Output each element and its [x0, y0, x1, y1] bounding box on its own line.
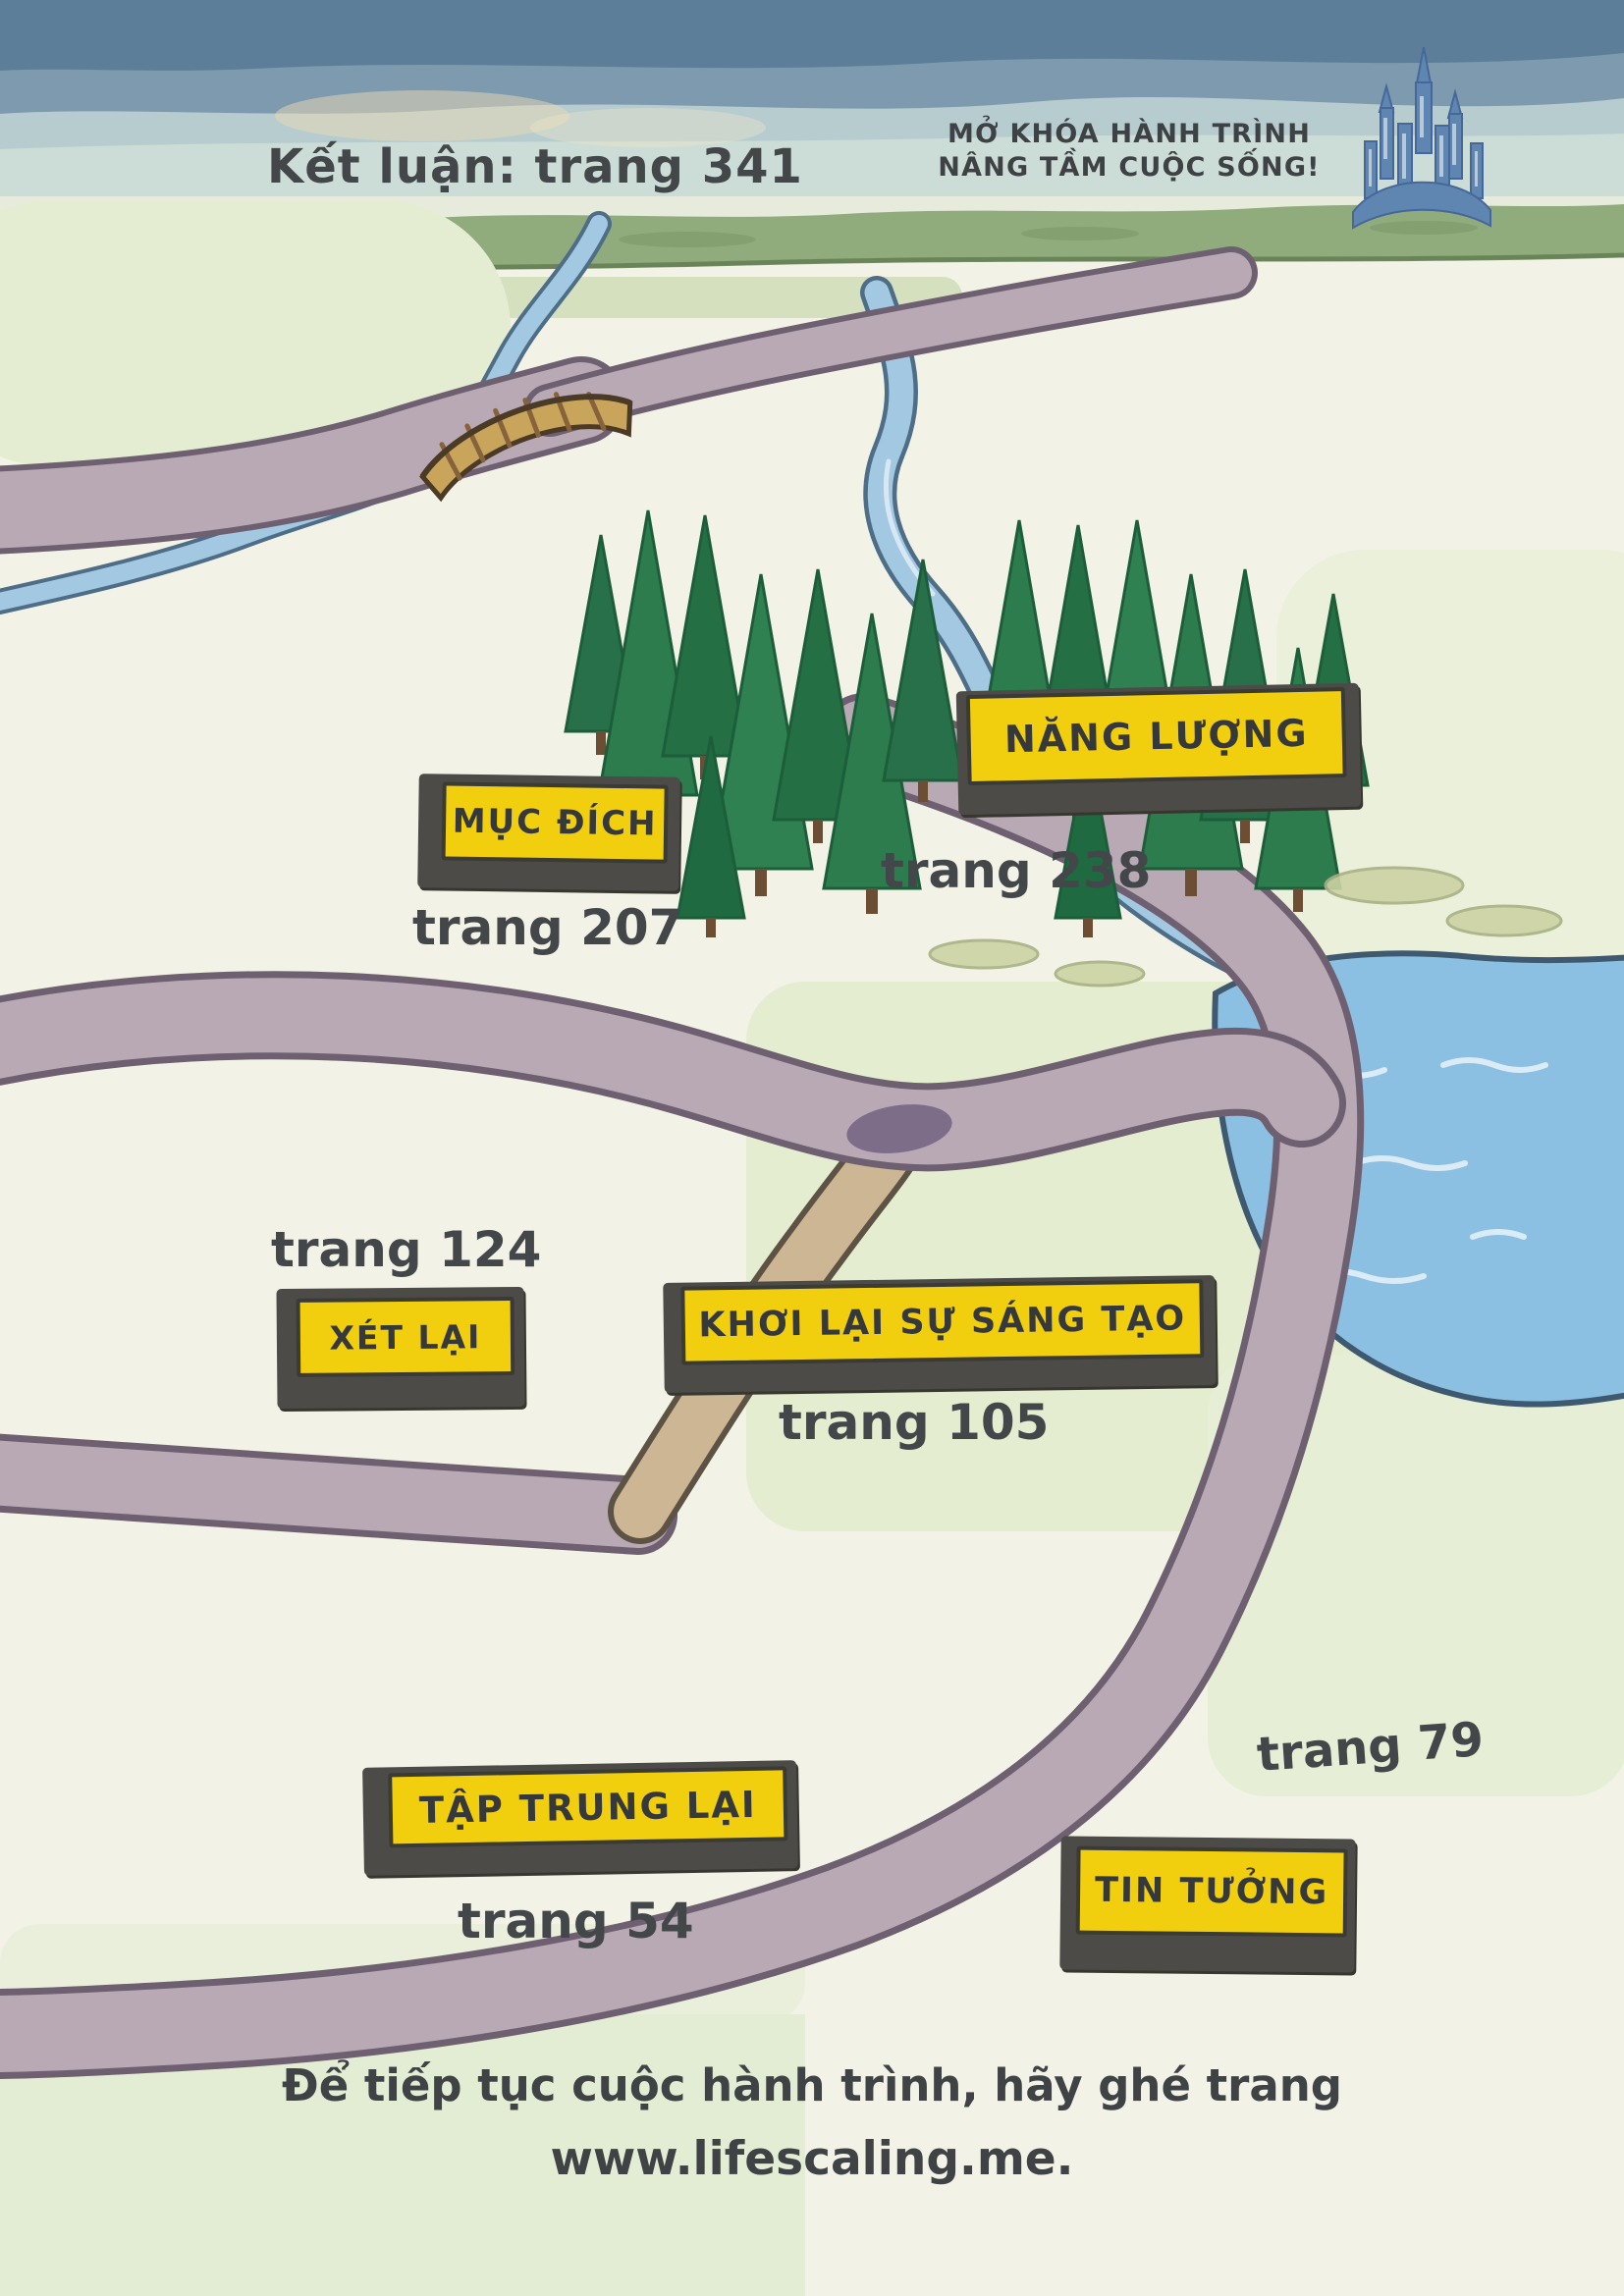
sign-xet-lai[interactable]: XÉT LẠI: [276, 1287, 524, 1409]
journey-map-page: Kết luận: trang 341 MỞ KHÓA HÀNH TRÌNH N…: [0, 0, 1624, 2296]
slogan-line2: NÂNG TẦM CUỘC SỐNG!: [933, 151, 1326, 185]
page-ref-xet-lai: trang 124: [271, 1221, 541, 1278]
sign-label: NĂNG LƯỢNG: [966, 687, 1347, 785]
road-lower-left: [0, 1472, 638, 1516]
sign-label: TIN TƯỞNG: [1076, 1846, 1348, 1938]
slogan: MỞ KHÓA HÀNH TRÌNH NÂNG TẦM CUỘC SỐNG!: [933, 118, 1326, 185]
page-ref-muc-dich: trang 207: [412, 899, 682, 956]
sign-label: KHƠI LẠI SỰ SÁNG TẠO: [680, 1279, 1204, 1364]
sign-label: TẬP TRUNG LẠI: [388, 1766, 787, 1847]
sign-tap-trung-lai[interactable]: TẬP TRUNG LẠI: [362, 1760, 798, 1876]
sign-khoi-lai-su-sang-tao[interactable]: KHƠI LẠI SỰ SÁNG TẠO: [663, 1275, 1217, 1393]
page-ref-nang-luong: trang 238: [881, 842, 1151, 899]
sign-nang-luong[interactable]: NĂNG LƯỢNG: [956, 683, 1362, 816]
slogan-line1: MỞ KHÓA HÀNH TRÌNH: [933, 118, 1326, 151]
footer-url[interactable]: www.lifescaling.me.: [0, 2132, 1624, 2186]
sign-label: MỤC ĐÍCH: [442, 781, 669, 863]
sign-label: XÉT LẠI: [297, 1297, 515, 1377]
conclusion-label: Kết luận: trang 341: [267, 139, 803, 194]
page-ref-tap-trung: trang 54: [458, 1893, 694, 1949]
page-ref-khoi-lai: trang 105: [779, 1394, 1049, 1451]
sign-tin-tuong[interactable]: TIN TƯỞNG: [1059, 1836, 1355, 1972]
footer-cta: Để tiếp tục cuộc hành trình, hãy ghé tra…: [0, 2059, 1624, 2111]
map-illustration: [0, 0, 1624, 2296]
sign-muc-dich[interactable]: MỤC ĐÍCH: [417, 774, 680, 891]
